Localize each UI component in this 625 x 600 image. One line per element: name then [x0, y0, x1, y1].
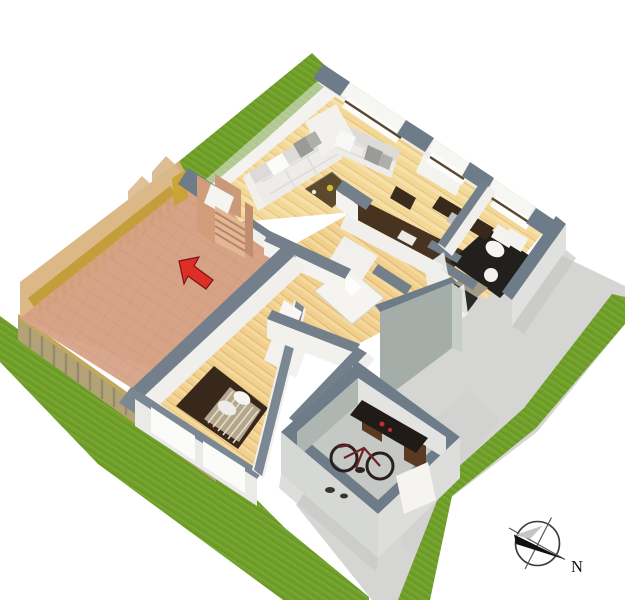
svg-text:N: N	[571, 557, 583, 576]
